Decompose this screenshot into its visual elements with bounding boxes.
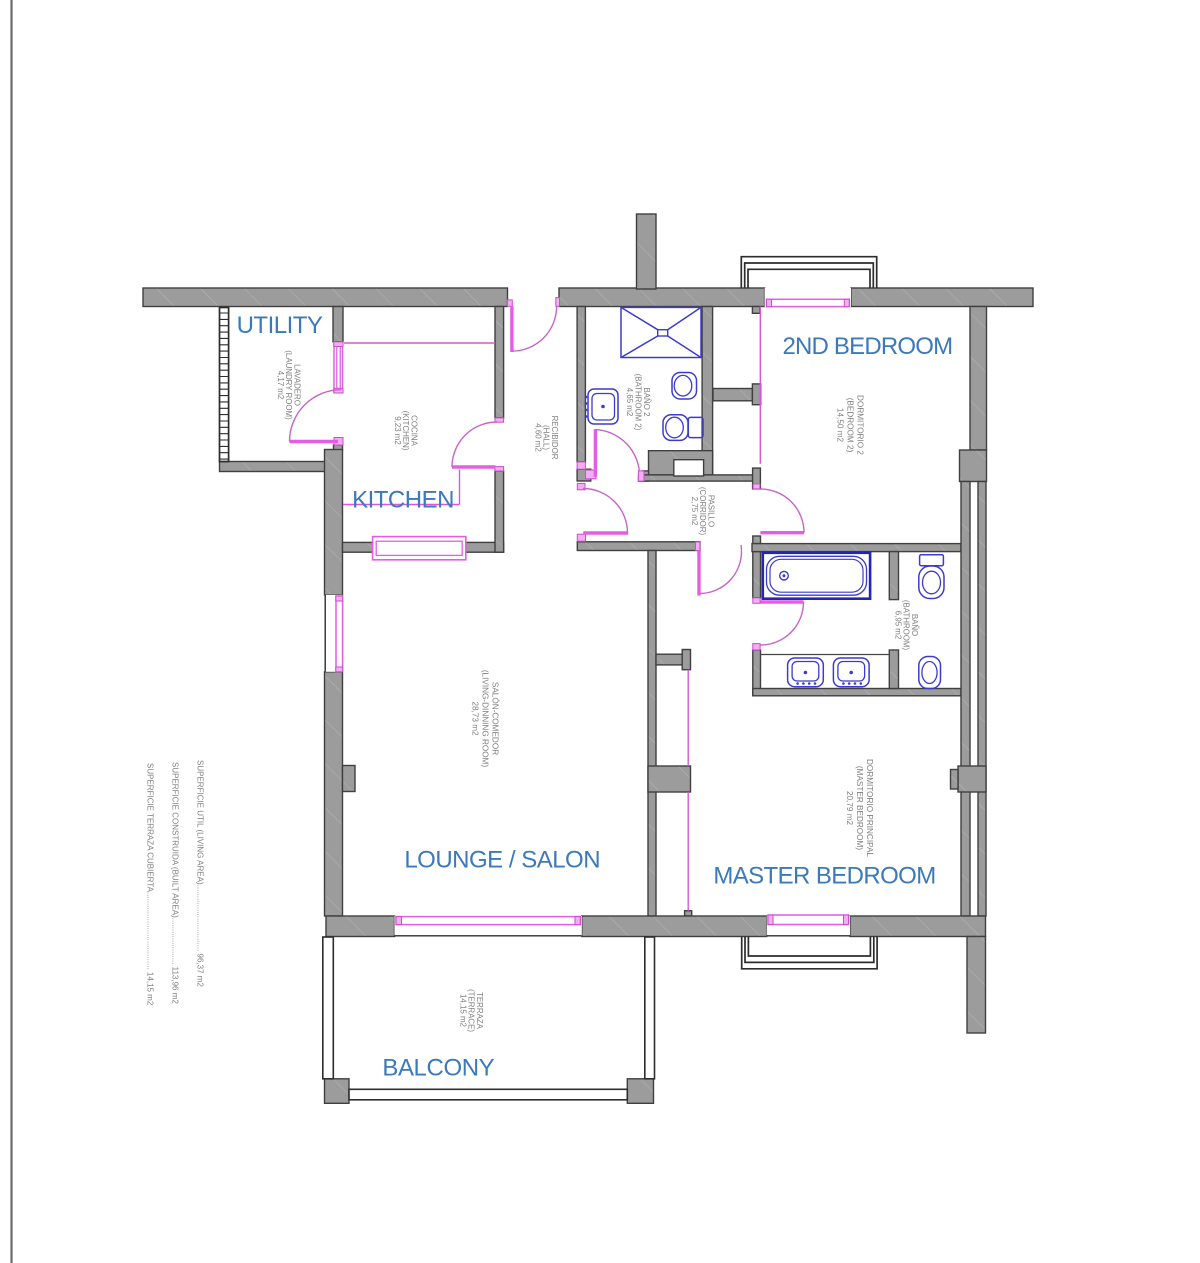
svg-text:9,23 m2: 9,23 m2 bbox=[393, 416, 402, 445]
svg-text:(MASTER BEDROOM): (MASTER BEDROOM) bbox=[855, 766, 864, 850]
svg-text:4,17 m2: 4,17 m2 bbox=[276, 371, 285, 400]
svg-text:DORMITORIO 2: DORMITORIO 2 bbox=[856, 395, 865, 455]
svg-text:SUPERFICIE CONSTRUIDA (BUILT A: SUPERFICIE CONSTRUIDA (BUILT AREA)......… bbox=[171, 762, 180, 1004]
svg-text:2ND BEDROOM: 2ND BEDROOM bbox=[782, 333, 952, 360]
svg-text:(LIVING-DINNING ROOM): (LIVING-DINNING ROOM) bbox=[481, 670, 490, 768]
svg-text:2,75 m2: 2,75 m2 bbox=[690, 497, 699, 526]
svg-text:14,50 m2: 14,50 m2 bbox=[836, 408, 845, 443]
svg-text:BALCONY: BALCONY bbox=[382, 1054, 494, 1081]
svg-text:SUPERFICIE TERRAZA CUBIERTA...: SUPERFICIE TERRAZA CUBIERTA.............… bbox=[146, 763, 155, 1006]
svg-text:SUPERFICIE UTIL (LIVING AREA).: SUPERFICIE UTIL (LIVING AREA)...........… bbox=[196, 760, 205, 987]
svg-text:LOUNGE / SALON: LOUNGE / SALON bbox=[404, 846, 600, 873]
svg-text:4,65 m2: 4,65 m2 bbox=[625, 388, 634, 417]
svg-text:SALÓN-COMEDOR: SALÓN-COMEDOR bbox=[491, 682, 501, 755]
svg-text:(BEDROOM 2): (BEDROOM 2) bbox=[846, 398, 855, 453]
svg-text:MASTER BEDROOM: MASTER BEDROOM bbox=[713, 863, 935, 890]
svg-text:UTILITY: UTILITY bbox=[237, 312, 323, 339]
svg-text:14,15 m2: 14,15 m2 bbox=[458, 994, 467, 1027]
svg-text:4,60 m2: 4,60 m2 bbox=[533, 423, 542, 452]
svg-text:28,73 m2: 28,73 m2 bbox=[471, 701, 480, 736]
svg-text:KITCHEN: KITCHEN bbox=[352, 487, 454, 514]
svg-text:20,79 m2: 20,79 m2 bbox=[845, 791, 854, 826]
svg-text:DORMITORIO PRINCIPAL: DORMITORIO PRINCIPAL bbox=[865, 759, 874, 857]
svg-text:6,95 m2: 6,95 m2 bbox=[893, 611, 902, 640]
